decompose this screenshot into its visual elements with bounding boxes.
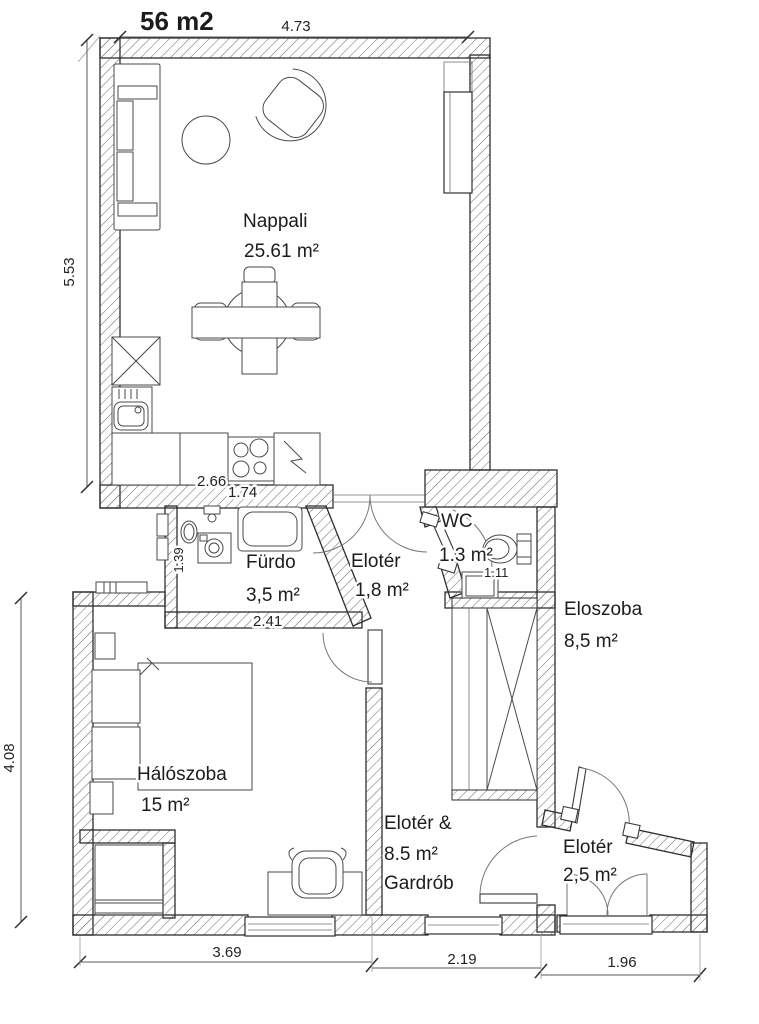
sofa [114,64,160,230]
dim-bath-height: 1.39 [171,547,186,572]
dim-left-lower: 4.08 [1,743,18,772]
total-area-label: 56 m2 [140,6,214,36]
hall-door-leaf [480,894,537,903]
dim-kitchen-upper: 2.66 [197,473,226,490]
room-label-nappali: Nappali [243,211,307,232]
room-area-eloter-small: 1,8 m² [355,580,409,601]
room-area-haloszoba: 15 m² [141,795,190,816]
floor-plan: 56 m2 4.73 5.53 4.08 3.69 2.19 1.96 2.66… [0,0,759,1024]
desk-chair [289,848,346,898]
fridge [274,433,320,485]
bedroom-closet [95,845,163,915]
room-area-eloter-gardrob: 8.5 m² [384,844,438,865]
washing-machine [198,533,231,563]
room-label-furdo: Fürdo [246,552,296,573]
wardrobe [452,598,537,800]
entry-sill [560,916,652,934]
room-area-furdo: 3,5 m² [246,585,300,606]
dim-wc-width: 1.11 [484,565,508,580]
room-area-wc: 1.3 m² [439,545,493,566]
room-area-eloszoba: 8,5 m² [564,631,618,652]
dim-bottom-left: 3.69 [212,944,241,961]
room-area-eloter-entry: 2,5 m² [563,865,617,886]
room-label-eloter-gardrob: Elotér & [384,813,452,834]
bedroom-window [245,917,335,936]
kitchen [112,337,320,485]
bedroom-door-arc [323,633,372,682]
dim-left-upper: 5.53 [61,257,78,286]
entrance-door-arc [582,768,629,829]
room-label-gardrob: Gardrób [384,873,454,894]
dim-bottom-right: 1.96 [607,954,636,971]
room-label-wc: WC [441,511,473,532]
room-label-eloter-entry: Elotér [563,837,613,858]
bedroom-door-leaf [368,630,382,684]
armchair [251,63,341,155]
bedroom-shelves [90,633,140,814]
hall-door-arc [480,836,537,894]
living-room-window [444,92,472,193]
dim-top: 4.73 [281,18,310,35]
hall-window [425,917,502,934]
room-area-nappali: 25.61 m² [244,241,319,262]
dim-bath-width: 2.41 [253,613,282,630]
room-label-eloter-small: Elotér [351,551,401,572]
room-label-eloszoba: Eloszoba [564,599,643,620]
bedroom-radiator [96,582,147,593]
side-table [182,116,230,164]
room-label-haloszoba: Hálószoba [137,764,227,785]
living-room-door-arc-right [370,495,427,552]
dim-bottom-middle: 2.19 [447,951,476,968]
dim-kitchen-lower: 1.74 [228,484,257,501]
floor-plan-page: 56 m2 4.73 5.53 4.08 3.69 2.19 1.96 2.66… [0,0,759,1024]
dining-table [192,267,320,374]
